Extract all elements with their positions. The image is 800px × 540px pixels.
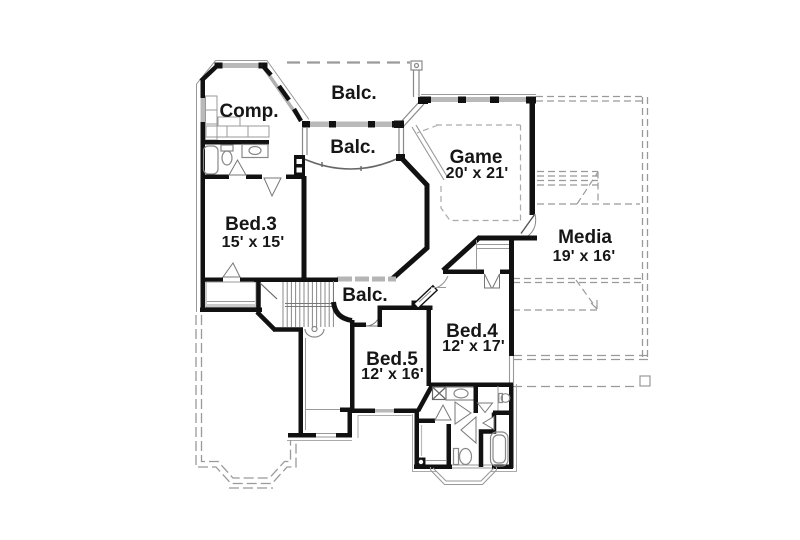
svg-text:20' x 21': 20' x 21' bbox=[446, 165, 509, 182]
svg-text:19' x 16': 19' x 16' bbox=[553, 248, 616, 265]
svg-text:Balc.: Balc. bbox=[330, 137, 375, 158]
svg-text:Balc.: Balc. bbox=[342, 285, 387, 306]
svg-text:12' x 17': 12' x 17' bbox=[442, 338, 505, 355]
svg-text:Balc.: Balc. bbox=[331, 83, 376, 104]
svg-text:12' x 16': 12' x 16' bbox=[361, 366, 424, 383]
svg-text:Comp.: Comp. bbox=[219, 101, 278, 122]
svg-text:Bed.3: Bed.3 bbox=[225, 214, 277, 235]
svg-text:15' x 15': 15' x 15' bbox=[222, 234, 285, 251]
svg-text:Media: Media bbox=[558, 227, 612, 248]
